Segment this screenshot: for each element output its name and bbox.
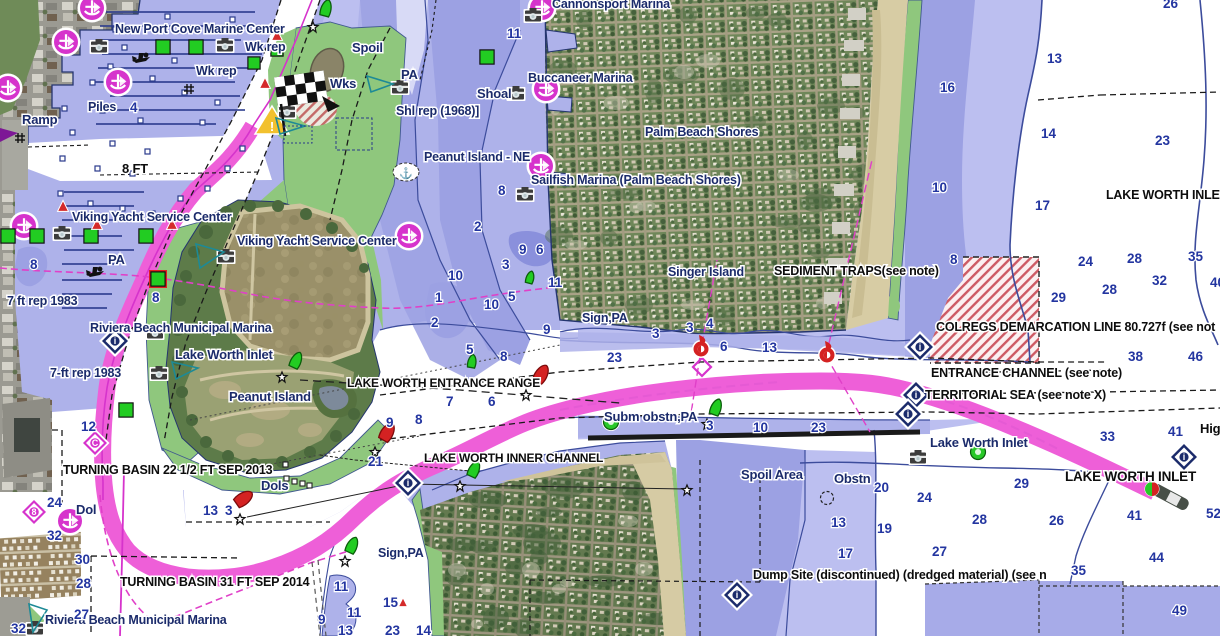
svg-text:8: 8 — [950, 252, 958, 267]
svg-text:9: 9 — [543, 322, 551, 337]
svg-text:i: i — [907, 409, 910, 419]
svg-text:6: 6 — [488, 394, 496, 409]
svg-text:10: 10 — [932, 180, 947, 195]
svg-text:3: 3 — [706, 418, 714, 433]
svg-text:2: 2 — [431, 315, 439, 330]
svg-text:44: 44 — [1149, 550, 1165, 565]
svg-text:40: 40 — [1210, 275, 1220, 290]
svg-text:Shoal: Shoal — [477, 86, 511, 101]
svg-text:17: 17 — [838, 546, 853, 561]
svg-text:Wk rep: Wk rep — [245, 40, 286, 54]
svg-text:14: 14 — [416, 623, 432, 636]
svg-text:⚓: ⚓ — [399, 167, 413, 180]
svg-text:33: 33 — [1100, 429, 1116, 444]
svg-text:Wks: Wks — [330, 76, 356, 91]
svg-text:4: 4 — [130, 100, 138, 115]
svg-text:28: 28 — [972, 512, 988, 527]
svg-text:13: 13 — [338, 623, 354, 636]
svg-text:3: 3 — [686, 320, 694, 335]
svg-text:23: 23 — [811, 420, 827, 435]
svg-text:Lake Worth Inlet: Lake Worth Inlet — [175, 347, 274, 362]
svg-text:11: 11 — [347, 605, 362, 620]
svg-text:9: 9 — [318, 612, 326, 627]
svg-text:38: 38 — [1128, 349, 1144, 364]
svg-text:4: 4 — [706, 316, 714, 331]
svg-text:Riviera Beach Municipal Marina: Riviera Beach Municipal Marina — [45, 613, 228, 627]
svg-text:i: i — [919, 342, 922, 352]
svg-text:i: i — [407, 478, 410, 488]
svg-text:Ramp: Ramp — [22, 112, 58, 127]
svg-text:1: 1 — [435, 290, 443, 305]
svg-text:8: 8 — [30, 257, 38, 272]
svg-text:29: 29 — [1014, 476, 1029, 491]
svg-text:24: 24 — [917, 490, 933, 505]
svg-text:TURNING BASIN 31 FT SEP 2014: TURNING BASIN 31 FT SEP 2014 — [120, 575, 310, 589]
svg-text:Dump Site (discontinued) (dred: Dump Site (discontinued) (dredged materi… — [753, 568, 1047, 582]
svg-text:16: 16 — [940, 80, 956, 95]
svg-text:Dol: Dol — [76, 502, 96, 517]
svg-text:C: C — [92, 438, 99, 448]
svg-text:23: 23 — [385, 623, 401, 636]
svg-text:11: 11 — [507, 26, 522, 41]
svg-text:41: 41 — [1168, 424, 1184, 439]
svg-text:14: 14 — [1041, 126, 1057, 141]
svg-text:LAKE WORTH INNER CHANNEL: LAKE WORTH INNER CHANNEL — [424, 451, 603, 465]
svg-text:2: 2 — [474, 219, 482, 234]
svg-text:10: 10 — [753, 420, 768, 435]
svg-text:28: 28 — [76, 576, 92, 591]
svg-text:9: 9 — [519, 242, 527, 257]
svg-text:8: 8 — [152, 290, 160, 305]
svg-text:Peanut Island: Peanut Island — [229, 389, 311, 404]
svg-text:17: 17 — [1035, 198, 1050, 213]
svg-text:28: 28 — [1127, 251, 1143, 266]
svg-text:Shl rep (1968)]: Shl rep (1968)] — [396, 104, 479, 118]
svg-text:8: 8 — [498, 183, 506, 198]
svg-text:!: ! — [270, 119, 274, 134]
svg-text:20: 20 — [874, 480, 889, 495]
svg-text:Peanut Island - NE: Peanut Island - NE — [424, 150, 530, 164]
svg-text:Dols: Dols — [261, 478, 288, 493]
svg-text:3: 3 — [225, 503, 233, 518]
svg-text:24: 24 — [1078, 254, 1094, 269]
svg-text:Riviera Beach Municipal Marina: Riviera Beach Municipal Marina — [90, 321, 273, 335]
svg-text:SEDIMENT TRAPS(see note): SEDIMENT TRAPS(see note) — [774, 264, 939, 278]
svg-text:35: 35 — [1071, 563, 1087, 578]
svg-text:Subm obstn,PA: Subm obstn,PA — [604, 409, 698, 424]
svg-text:15: 15 — [383, 595, 399, 610]
svg-text:27: 27 — [932, 544, 947, 559]
svg-text:7-ft rep 1983: 7-ft rep 1983 — [50, 366, 121, 380]
svg-text:TURNING BASIN 22 1/2 FT SEP 20: TURNING BASIN 22 1/2 FT SEP 2013 — [63, 463, 273, 477]
svg-text:i: i — [114, 336, 117, 346]
svg-text:LAKE WORTH ENTRANCE RANGE: LAKE WORTH ENTRANCE RANGE — [347, 376, 540, 390]
svg-text:LAKE WORTH INLET: LAKE WORTH INLET — [1065, 469, 1197, 484]
svg-text:Palm Beach Shores: Palm Beach Shores — [645, 125, 759, 139]
svg-text:8: 8 — [500, 349, 508, 364]
svg-text:13: 13 — [203, 503, 219, 518]
svg-text:32: 32 — [47, 528, 62, 543]
svg-text:21: 21 — [368, 454, 384, 469]
svg-text:49: 49 — [1172, 603, 1187, 618]
svg-text:LAKE WORTH INLET: LAKE WORTH INLET — [1106, 188, 1220, 202]
svg-text:5: 5 — [508, 289, 516, 304]
svg-text:Spoil Area: Spoil Area — [741, 467, 804, 482]
svg-text:Wk rep: Wk rep — [196, 64, 237, 78]
svg-text:Buccaneer Marina: Buccaneer Marina — [528, 71, 634, 85]
svg-text:5: 5 — [466, 342, 474, 357]
svg-text:35: 35 — [1188, 249, 1204, 264]
svg-text:41: 41 — [1127, 508, 1143, 523]
svg-text:Viking Yacht Service Center: Viking Yacht Service Center — [72, 210, 232, 224]
svg-text:10: 10 — [448, 268, 463, 283]
svg-text:32: 32 — [1152, 273, 1167, 288]
svg-text:ENTRANCE CHANNEL (see note): ENTRANCE CHANNEL (see note) — [931, 366, 1122, 380]
svg-text:23: 23 — [1155, 133, 1171, 148]
svg-text:Lake Worth Inlet: Lake Worth Inlet — [930, 435, 1029, 450]
svg-text:12: 12 — [81, 419, 96, 434]
svg-text:i: i — [736, 590, 739, 600]
svg-text:PA: PA — [401, 67, 419, 82]
svg-text:Hig: Hig — [1200, 421, 1220, 436]
svg-text:19: 19 — [877, 521, 892, 536]
svg-text:3: 3 — [652, 326, 660, 341]
svg-text:11: 11 — [548, 275, 563, 290]
svg-text:3: 3 — [502, 257, 510, 272]
svg-text:Spoil: Spoil — [352, 40, 383, 55]
svg-text:7: 7 — [446, 394, 454, 409]
svg-text:Sign,PA: Sign,PA — [378, 546, 424, 560]
svg-text:13: 13 — [831, 515, 847, 530]
svg-text:26: 26 — [1163, 0, 1179, 11]
svg-text:8: 8 — [415, 412, 423, 427]
svg-text:46: 46 — [1188, 349, 1204, 364]
svg-text:New Port Cove Marine Center: New Port Cove Marine Center — [115, 22, 285, 36]
svg-text:26: 26 — [1049, 513, 1065, 528]
svg-text:Singer Island: Singer Island — [668, 265, 744, 279]
svg-text:9: 9 — [386, 415, 394, 430]
svg-text:7 ft rep 1983: 7 ft rep 1983 — [7, 294, 78, 308]
svg-text:13: 13 — [762, 340, 778, 355]
svg-text:TERRITORIAL SEA (see note X): TERRITORIAL SEA (see note X) — [925, 388, 1106, 402]
svg-text:Obstn: Obstn — [834, 471, 871, 486]
svg-text:Sailfish Marina (Palm Beach Sh: Sailfish Marina (Palm Beach Shores) — [531, 173, 741, 187]
svg-text:6: 6 — [720, 339, 728, 354]
svg-text:i: i — [1183, 452, 1186, 462]
svg-text:i: i — [915, 390, 918, 400]
svg-text:8 FT: 8 FT — [122, 161, 148, 176]
svg-text:23: 23 — [607, 350, 623, 365]
svg-text:27: 27 — [74, 607, 89, 622]
svg-text:Cannonsport Marina: Cannonsport Marina — [552, 0, 671, 11]
svg-text:13: 13 — [1047, 51, 1063, 66]
svg-text:8: 8 — [31, 507, 36, 517]
svg-text:28: 28 — [1102, 282, 1118, 297]
svg-text:24: 24 — [47, 495, 63, 510]
svg-text:PA: PA — [108, 252, 126, 267]
svg-text:52: 52 — [1206, 506, 1220, 521]
svg-text:10: 10 — [484, 297, 499, 312]
svg-text:6: 6 — [536, 242, 544, 257]
svg-text:COLREGS DEMARCATION LINE 80.72: COLREGS DEMARCATION LINE 80.727f (see no… — [936, 320, 1216, 334]
svg-text:30: 30 — [75, 552, 90, 567]
svg-text:Viking Yacht Service Center: Viking Yacht Service Center — [237, 234, 397, 248]
svg-text:32: 32 — [11, 621, 26, 636]
svg-text:Piles: Piles — [88, 100, 116, 114]
svg-text:11: 11 — [334, 579, 349, 594]
svg-text:Sign,PA: Sign,PA — [582, 311, 628, 325]
svg-text:29: 29 — [1051, 290, 1066, 305]
